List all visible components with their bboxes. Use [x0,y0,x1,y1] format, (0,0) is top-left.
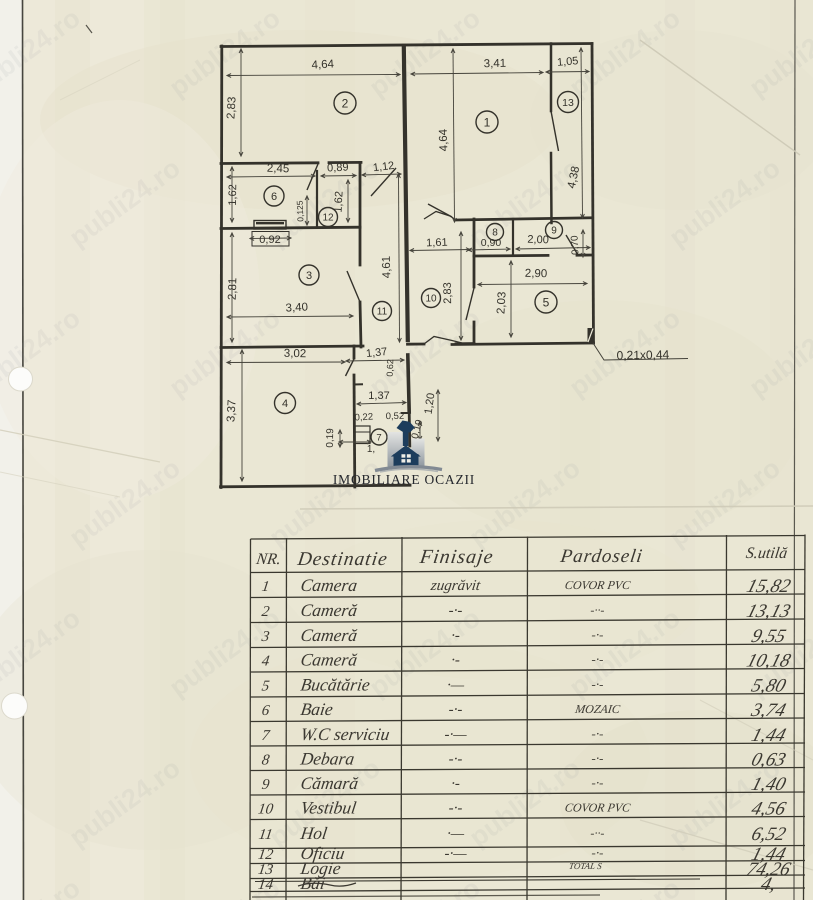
svg-text:4,64: 4,64 [438,128,451,151]
svg-text:0,52: 0,52 [386,411,405,422]
svg-text:2,90: 2,90 [525,268,548,280]
svg-text:Destinatie: Destinatie [295,549,389,570]
svg-text:9,55: 9,55 [749,626,788,647]
svg-text:4,64: 4,64 [311,58,335,71]
svg-text:S.utilă: S.utilă [745,545,789,562]
svg-text:Hol: Hol [298,823,328,843]
svg-text:-··-: -··- [590,603,606,617]
svg-text:-·-: -·- [591,677,605,692]
svg-text:1,61: 1,61 [426,237,448,250]
svg-text:zugrăvit: zugrăvit [429,578,482,594]
svg-text:·—: ·— [446,678,466,694]
svg-text:-·-: -·- [591,751,605,766]
svg-text:4,61: 4,61 [381,256,393,279]
svg-text:-·—: -·— [443,846,468,862]
svg-text:-·-: -·- [591,627,605,642]
svg-text:0,22: 0,22 [354,412,373,424]
svg-text:1: 1 [484,115,491,129]
svg-text:MOZAIC: MOZAIC [573,702,622,716]
svg-text:Cameră: Cameră [299,600,358,620]
svg-text:Cameră: Cameră [299,650,358,670]
svg-text:2,83: 2,83 [442,282,454,304]
svg-text:-··-: -··- [590,826,606,840]
svg-text:COVOR PVC: COVOR PVC [564,578,632,592]
svg-text:Cămară: Cămară [299,773,359,793]
svg-text:TOTAL S: TOTAL S [568,861,603,871]
svg-text:·—: ·— [446,826,466,842]
svg-text:1,: 1, [367,444,375,455]
svg-text:14: 14 [257,877,275,893]
svg-text:-·-: -·- [448,752,464,768]
svg-text:IMOBILIARE OCAZII: IMOBILIARE OCAZII [333,472,475,487]
svg-text:3,40: 3,40 [285,301,308,314]
svg-text:0,92: 0,92 [259,234,280,246]
svg-text:4: 4 [282,398,288,410]
svg-text:13: 13 [257,862,275,878]
svg-text:COVOR PVC: COVOR PVC [564,801,632,815]
svg-text:0,62: 0,62 [385,359,396,377]
svg-text:-·-: -·- [448,603,464,619]
svg-text:Pardoseli: Pardoseli [558,546,644,567]
svg-text:3,37: 3,37 [225,399,238,422]
svg-text:-·-: -·- [591,726,605,741]
svg-text:1,62: 1,62 [227,184,239,206]
svg-text:-·-: -·- [448,702,464,718]
svg-text:2,83: 2,83 [225,96,238,119]
svg-text:W.C serviciu: W.C serviciu [299,724,391,744]
svg-text:3,41: 3,41 [484,58,507,70]
svg-text:Finisaje: Finisaje [418,546,496,568]
svg-text:15,82: 15,82 [744,576,793,597]
svg-text:1,40: 1,40 [749,774,788,795]
svg-text:9: 9 [551,226,557,237]
svg-text:10: 10 [257,802,275,818]
svg-text:0,63: 0,63 [749,750,788,771]
svg-text:2,81: 2,81 [227,277,240,300]
svg-text:0,19: 0,19 [325,428,336,448]
svg-text:0,70: 0,70 [569,235,581,255]
svg-text:7: 7 [376,432,381,443]
svg-text:5,80: 5,80 [749,676,788,697]
svg-text:4,56: 4,56 [749,799,788,820]
svg-text:1,05: 1,05 [557,55,579,69]
svg-text:Cameră: Cameră [299,625,358,645]
svg-text:12: 12 [322,213,334,224]
svg-text:-·-: -·- [591,775,605,790]
svg-text:1,37: 1,37 [365,346,388,360]
svg-text:Bucătărie: Bucătărie [299,675,371,695]
svg-text:0,89: 0,89 [327,161,349,174]
svg-text:6: 6 [271,191,277,203]
svg-text:-·-: -·- [448,801,464,817]
svg-text:2,45: 2,45 [267,163,290,176]
svg-text:5: 5 [543,295,550,309]
svg-text:10: 10 [425,294,437,305]
svg-text:12: 12 [257,847,275,863]
svg-text:-·-: -·- [591,652,605,667]
svg-text:-·—: -·— [443,727,468,743]
svg-text:1,44: 1,44 [749,725,788,746]
svg-text:2,00: 2,00 [527,234,549,247]
svg-text:3,74: 3,74 [748,700,788,721]
svg-text:-·-: -·- [591,845,605,860]
svg-text:0,125: 0,125 [295,200,306,222]
svg-text:2,03: 2,03 [495,291,508,314]
svg-text:Baie: Baie [299,699,334,719]
svg-text:2: 2 [342,96,349,110]
svg-text:0,21x0,44: 0,21x0,44 [616,348,669,363]
svg-text:13: 13 [562,97,574,109]
svg-text:8: 8 [492,228,498,239]
svg-text:10,18: 10,18 [744,651,793,672]
svg-text:11: 11 [377,307,388,318]
svg-text:13,13: 13,13 [744,601,793,622]
svg-text:3,02: 3,02 [284,348,307,360]
svg-text:3: 3 [306,270,312,282]
svg-text:6,52: 6,52 [749,824,788,845]
svg-text:1,37: 1,37 [368,390,389,402]
svg-text:Vestibul: Vestibul [299,798,357,818]
svg-text:11: 11 [257,827,273,843]
svg-text:Debara: Debara [298,749,355,769]
svg-text:NR.: NR. [254,551,282,568]
svg-text:Camera: Camera [299,575,358,595]
